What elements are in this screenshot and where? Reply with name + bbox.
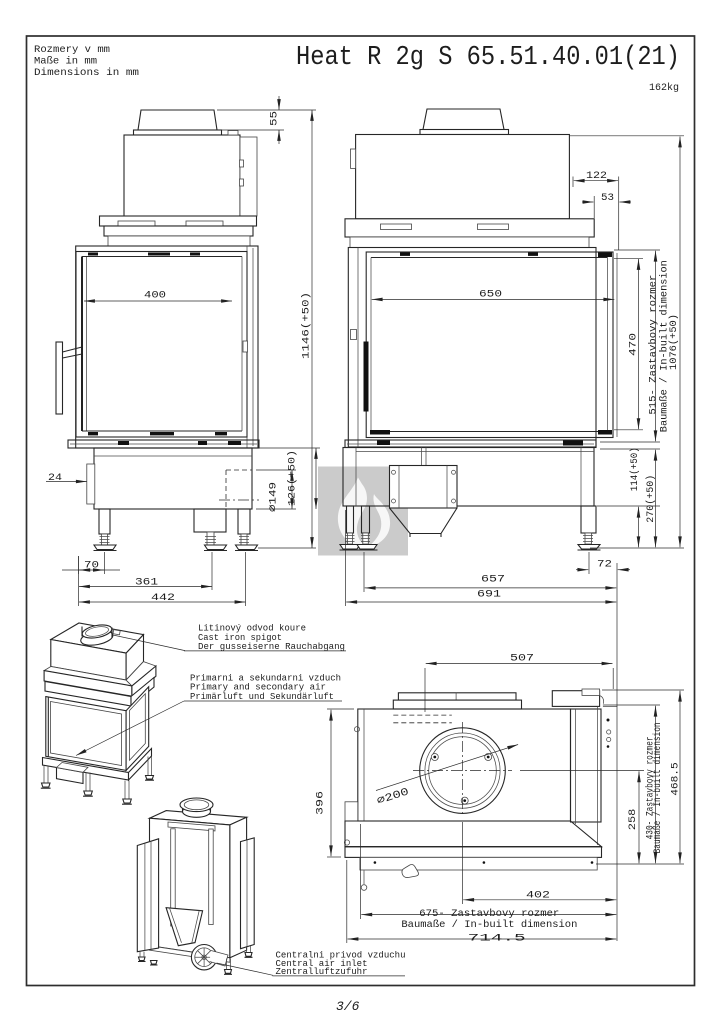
svg-text:55: 55	[269, 111, 281, 126]
svg-text:Maße in mm: Maße in mm	[34, 56, 97, 68]
svg-text:Dimensions in mm: Dimensions in mm	[34, 67, 139, 79]
svg-text:3/6: 3/6	[336, 999, 360, 1014]
svg-text:396: 396	[315, 791, 327, 815]
svg-text:70: 70	[84, 560, 99, 572]
svg-text:361: 361	[135, 577, 158, 589]
svg-text:650: 650	[479, 289, 502, 301]
svg-text:122: 122	[586, 170, 607, 182]
svg-text:1076(+50): 1076(+50)	[668, 314, 680, 370]
svg-text:24: 24	[48, 472, 62, 484]
svg-text:270(+50): 270(+50)	[645, 475, 657, 523]
svg-text:1146(+50): 1146(+50)	[301, 292, 313, 359]
svg-text:470: 470	[628, 333, 640, 356]
svg-text:Baumaße / In-built dimension: Baumaße / In-built dimension	[401, 919, 577, 931]
svg-text:258: 258	[627, 809, 639, 831]
svg-text:402: 402	[526, 890, 550, 902]
svg-text:507: 507	[510, 653, 534, 665]
svg-text:114(+50): 114(+50)	[629, 447, 641, 491]
svg-text:691: 691	[477, 589, 501, 601]
svg-text:∅149: ∅149	[268, 482, 280, 512]
svg-text:657: 657	[481, 574, 505, 586]
svg-text:162kg: 162kg	[649, 82, 679, 94]
svg-text:468.5: 468.5	[670, 762, 682, 796]
svg-text:Heat R 2g S 65.51.40.01(21): Heat R 2g S 65.51.40.01(21)	[296, 43, 680, 73]
svg-text:400: 400	[144, 290, 166, 302]
svg-text:Rozmery v mm: Rozmery v mm	[34, 45, 110, 56]
svg-text:53: 53	[601, 192, 614, 204]
svg-text:714.5: 714.5	[468, 933, 526, 945]
svg-text:72: 72	[597, 559, 612, 571]
svg-text:675- Zastavbovy rozmer: 675- Zastavbovy rozmer	[419, 908, 559, 920]
svg-text:442: 442	[151, 592, 175, 604]
svg-text:126(+50): 126(+50)	[287, 450, 299, 506]
svg-text:Primärluft und Sekundärluft: Primärluft und Sekundärluft	[190, 692, 334, 702]
svg-text:Baumaße / In-built dimension: Baumaße / In-built dimension	[652, 722, 664, 853]
